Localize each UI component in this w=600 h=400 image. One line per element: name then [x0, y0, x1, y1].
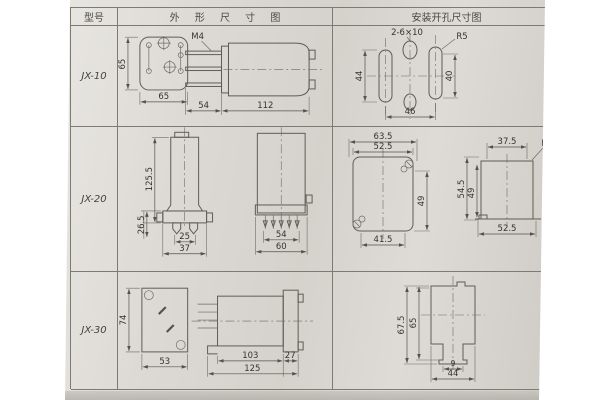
photographed-paper: 型号 外 形 尺 寸 图 安装开孔尺寸图 JX-10 65 — [56, 0, 548, 400]
dim-jx10-front-height: 65 — [118, 58, 127, 69]
dim-jx20-base-height: 26.5 — [136, 215, 146, 234]
label-jx10-slot-spec: 2-6×10 — [391, 28, 423, 38]
dim-jx20-side-width: 60 — [276, 240, 287, 250]
jx30-front-view: 74 53 — [118, 288, 188, 370]
jx10-front-view: 65 65 — [118, 36, 188, 105]
model-label-jx30: JX-30 — [71, 272, 118, 390]
jx30-side-view: 103 27 125 — [192, 290, 313, 377]
dim-jx30-mounting-tab-width: 9 — [451, 359, 456, 368]
label-jx10-slot-radius: R5 — [456, 32, 467, 42]
dim-jx30-mounting-outer-height: 67.5 — [397, 316, 407, 335]
dim-jx20-hole1-height: 49 — [417, 196, 427, 207]
jx30-outline-drawing: 74 53 103 27 — [118, 272, 332, 389]
jx10-mounting-view: 2-6×10 R5 44 40 46 — [355, 28, 468, 120]
jx10-outline-cell: 65 65 M4 — [118, 26, 333, 127]
dim-jx30-body-length: 103 — [242, 350, 258, 360]
jx30-mounting-view: 67.5 65 9 44 — [397, 276, 485, 382]
jx30-mounting-drawing: 67.5 65 9 44 — [333, 272, 548, 389]
jx20-mounting-drawing: 63.5 52.5 49 41.5 37. — [333, 127, 548, 272]
dim-jx30-mounting-span: 44 — [448, 369, 459, 379]
dim-jx20-side-inner-width: 54 — [276, 228, 287, 238]
dim-jx10-front-width: 65 — [158, 90, 169, 100]
jx10-side-view: M4 54 112 — [186, 31, 322, 115]
header-mounting-hole-dimensions: 安装开孔尺寸图 — [298, 8, 548, 26]
label-jx20-hole2-radius: R2.5 — [541, 139, 548, 149]
jx20-side-view: 54 60 — [255, 127, 312, 254]
dim-jx20-hole2-width-bottom: 52.5 — [498, 224, 517, 234]
dim-jx20-hole1-width-outer: 63.5 — [374, 132, 393, 142]
jx20-mounting-view-1: 63.5 52.5 49 41.5 — [349, 132, 430, 248]
jx10-outline-drawing: 65 65 M4 — [118, 26, 332, 127]
dim-jx30-front-height: 74 — [118, 315, 128, 326]
dim-jx20-hole1-width-bottom: 41.5 — [374, 235, 393, 245]
dim-jx30-mounting-inner-height: 65 — [409, 318, 419, 329]
jx10-mounting-drawing: 2-6×10 R5 44 40 46 — [333, 26, 548, 127]
jx20-mounting-view-2: 37.5 R2.5 54.5 49 52.5 — [457, 137, 548, 237]
dim-jx20-front-width: 37 — [179, 242, 190, 252]
header-model: 型号 — [71, 8, 118, 26]
jx20-outline-cell: 125.5 26.5 25 37 — [118, 127, 333, 272]
dim-jx20-total-height: 125.5 — [144, 166, 154, 190]
dim-jx30-front-width: 53 — [159, 356, 170, 366]
dim-jx10-mounting-span: 46 — [405, 107, 416, 117]
jx20-front-view: 125.5 26.5 25 37 — [136, 127, 213, 256]
model-label-jx20: JX-20 — [71, 127, 118, 272]
jx10-mounting-cell: 2-6×10 R5 44 40 46 — [333, 26, 548, 127]
dim-jx20-hole1-width-inner: 52.5 — [374, 142, 393, 152]
dim-jx20-pin-span: 25 — [179, 230, 190, 240]
dim-jx10-mounting-left-height: 44 — [355, 71, 365, 82]
dim-jx10-body-length: 112 — [257, 99, 273, 109]
jx30-outline-cell: 74 53 103 27 — [118, 272, 333, 390]
dimension-table: 型号 外 形 尺 寸 图 安装开孔尺寸图 JX-10 65 — [70, 7, 548, 389]
dim-jx30-total-length: 125 — [244, 363, 260, 373]
dim-jx20-hole2-height-inner: 49 — [467, 188, 477, 199]
dim-jx10-mounting-right-height: 40 — [445, 71, 455, 82]
dim-jx20-hole2-height-outer: 54.5 — [457, 180, 467, 199]
jx30-mounting-cell: 67.5 65 9 44 — [333, 272, 548, 390]
dim-jx20-hole2-width-top: 37.5 — [498, 137, 517, 147]
model-label-jx10: JX-10 — [71, 26, 118, 127]
dim-jx30-flange-length: 27 — [285, 350, 296, 360]
dim-jx10-thread: M4 — [191, 31, 204, 41]
dim-jx10-blade-length: 54 — [198, 99, 209, 109]
jx20-mounting-cell: 63.5 52.5 49 41.5 37. — [333, 127, 548, 272]
jx20-outline-drawing: 125.5 26.5 25 37 — [118, 127, 332, 272]
